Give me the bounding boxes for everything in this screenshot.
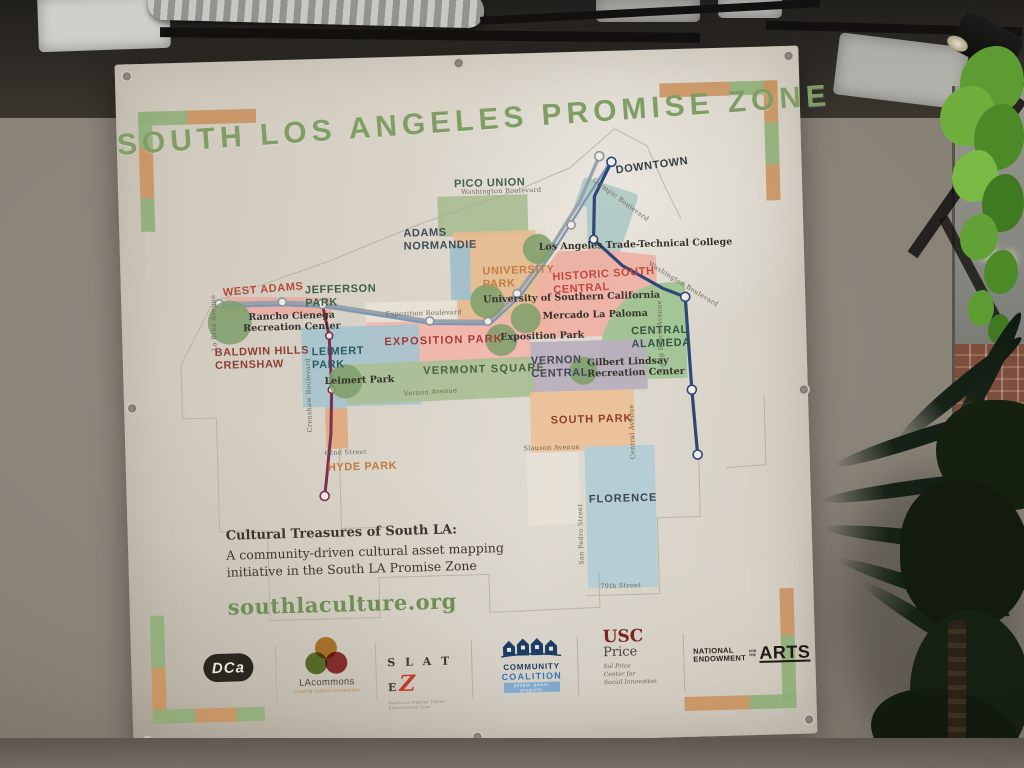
nea-line2: ENDOWMENT <box>693 654 746 664</box>
neighborhood-label-jefferson-park: JEFFERSON PARK <box>305 282 386 310</box>
wall-base <box>0 738 1024 768</box>
street-label-79th: 79th Street <box>600 581 641 590</box>
houses-icon <box>501 634 562 658</box>
neighborhood-label-south-park: SOUTH PARK <box>550 412 632 427</box>
community-coalition-logo: COMMUNITY COALITION people. power. progr… <box>495 634 569 693</box>
flex-duct <box>148 0 485 28</box>
nea-for2: THE <box>749 654 756 658</box>
landmark-label-gilbert-lindsay: Gilbert Lindsay Recreation Center <box>587 355 700 379</box>
neighborhood-label-central-alameda: CENTRAL ALAMEDA <box>631 323 704 350</box>
hanging-plant <box>930 46 1024 346</box>
landmark-label-rancho-cienega: Rancho Cienega Recreation Center <box>226 310 359 335</box>
slatez-name: S L A T E <box>387 654 452 694</box>
photo-scene: SOUTH LOS ANGELES PROMISE ZONE <box>0 0 1024 768</box>
street-label-slauson: Slauson Avenue <box>523 443 580 453</box>
lacommons-logo: LAcommons creating cultural connections <box>289 636 365 694</box>
street-label-la-brea: La Brea Avenue <box>209 293 219 351</box>
ceiling-beam <box>160 27 700 43</box>
lacommons-circle-icon <box>325 651 348 674</box>
neighborhood-label-leimert-park: LEIMERT PARK <box>311 345 374 372</box>
community-coalition-line2: COALITION <box>496 670 568 682</box>
promise-zone-banner: SOUTH LOS ANGELES PROMISE ZONE <box>115 46 818 753</box>
usc-price-logo: USC Price Sol Price Center for Social In… <box>602 627 676 687</box>
neighborhood-label-florence: FLORENCE <box>589 492 658 507</box>
street-label-central: Central Avenue <box>627 397 637 459</box>
neighborhood-label-hyde-park: HYDE PARK <box>328 460 398 475</box>
lacommons-circle-icon <box>305 652 328 675</box>
nea-arts-wordmark: ARTS <box>759 643 810 661</box>
street-label-62nd: 62nd Street <box>324 448 367 457</box>
palm-plant <box>840 390 1024 768</box>
dca-logo: DCa <box>203 653 254 682</box>
nea-logo: NATIONAL ENDOWMENT FOR THE ARTS <box>693 643 811 664</box>
community-coalition-tagline: people. power. progress. <box>504 681 560 693</box>
neighborhood-label-adams-normandie: ADAMS NORMANDIE <box>403 225 499 253</box>
slatez-logo: S L A T EZ South Los Angeles Transit Emp… <box>387 651 469 710</box>
slatez-z-icon: Z <box>399 671 416 697</box>
